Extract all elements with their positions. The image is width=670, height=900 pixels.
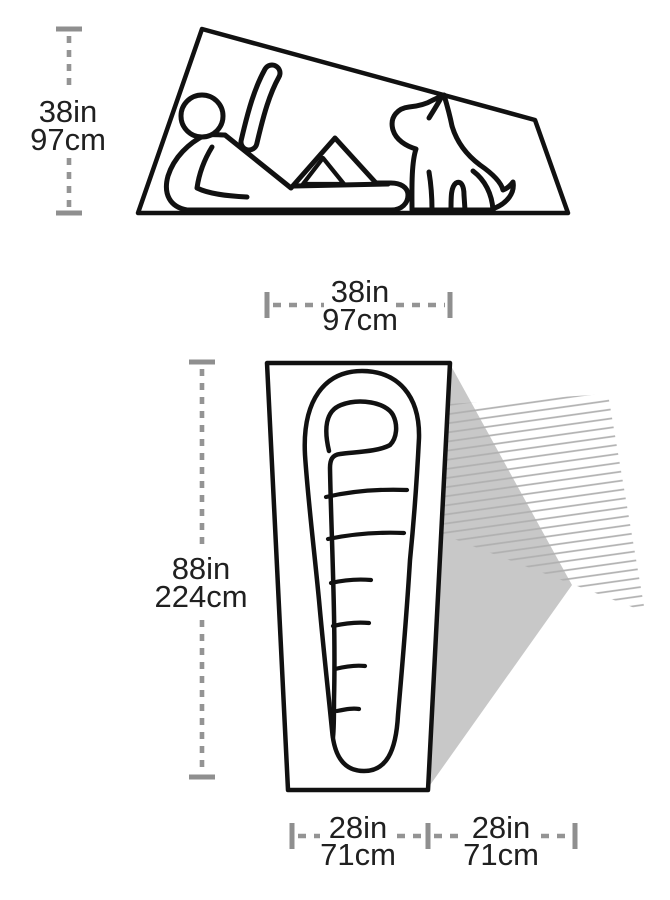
floor-length-label-cm: 224cm [154, 579, 247, 614]
side-height-label-cm: 97cm [30, 122, 106, 157]
person-head [181, 95, 223, 137]
sleeping-bag-baffle [337, 709, 359, 711]
dog-front-leg-line [429, 172, 432, 210]
floor-width-label-cm: 97cm [322, 302, 398, 337]
side-height-dimension: 38in 97cm [30, 29, 106, 213]
tent-side-view: 38in 97cm [30, 29, 568, 213]
tent-dimensions-diagram: 38in 97cm 38in 97cm [0, 0, 670, 900]
vestibule-width-label-cm: 71cm [463, 837, 539, 872]
floor-length-dimension: 88in 224cm [154, 362, 247, 777]
tent-floor-plan: 38in 97cm 88in 224cm 28in 71cm 28in 71c [154, 274, 645, 872]
vestibule-width-dimension: 28in 71cm [434, 810, 575, 872]
floor-width-dimension: 38in 97cm [267, 274, 450, 337]
floor-bottom-width-label-cm: 71cm [320, 837, 396, 872]
diagram-canvas: 38in 97cm 38in 97cm [0, 0, 670, 900]
floor-bottom-width-dimension: 28in 71cm [292, 810, 428, 872]
